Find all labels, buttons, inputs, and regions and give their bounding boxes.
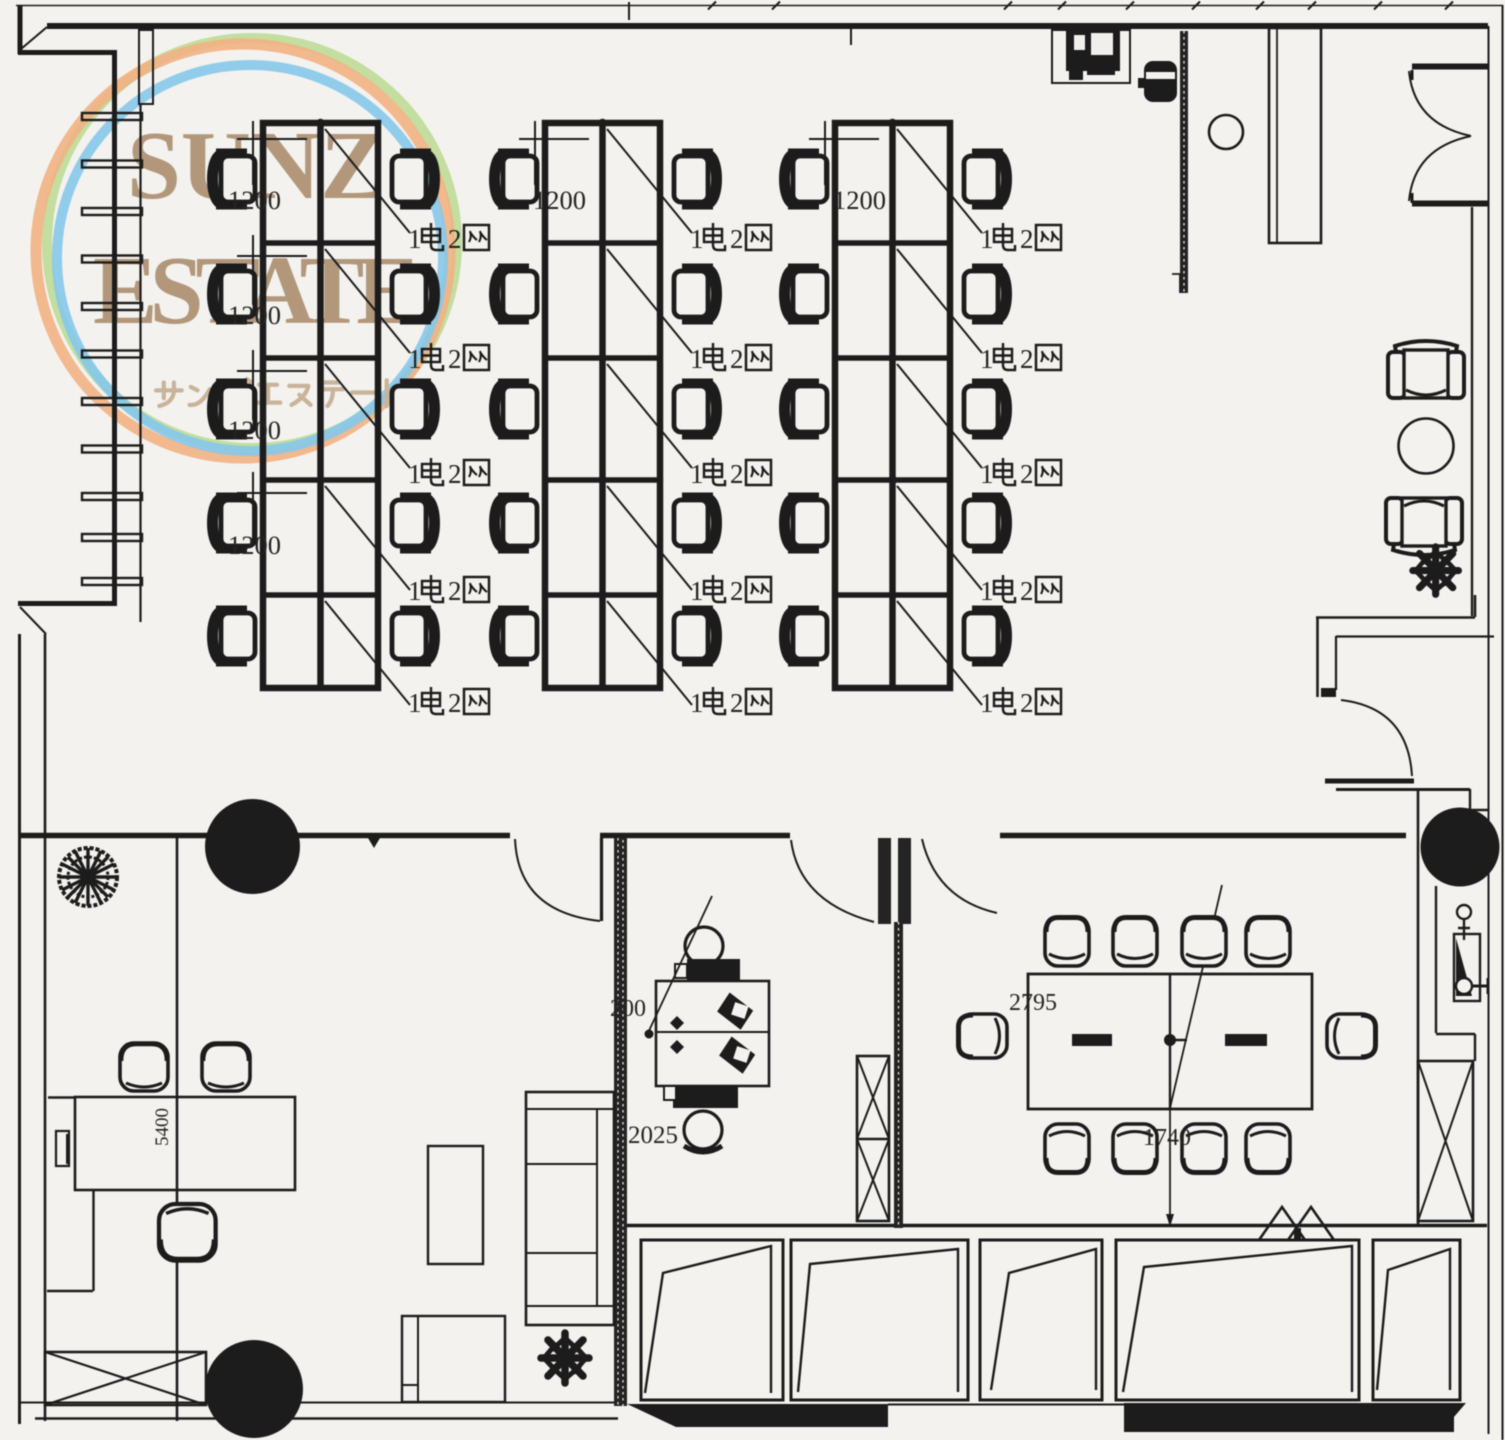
svg-text:1200: 1200 [228, 185, 281, 215]
svg-text:200: 200 [610, 996, 646, 1022]
svg-text:2025: 2025 [628, 1122, 678, 1149]
svg-text:1200: 1200 [228, 300, 281, 330]
svg-text:1740: 1740 [1143, 1125, 1191, 1151]
svg-text:1200: 1200 [533, 185, 586, 215]
svg-text:5400: 5400 [152, 1108, 173, 1146]
svg-text:1200: 1200 [228, 530, 281, 560]
svg-text:1200: 1200 [833, 185, 886, 215]
svg-text:1200: 1200 [228, 415, 281, 445]
svg-text:2795: 2795 [1009, 990, 1057, 1016]
